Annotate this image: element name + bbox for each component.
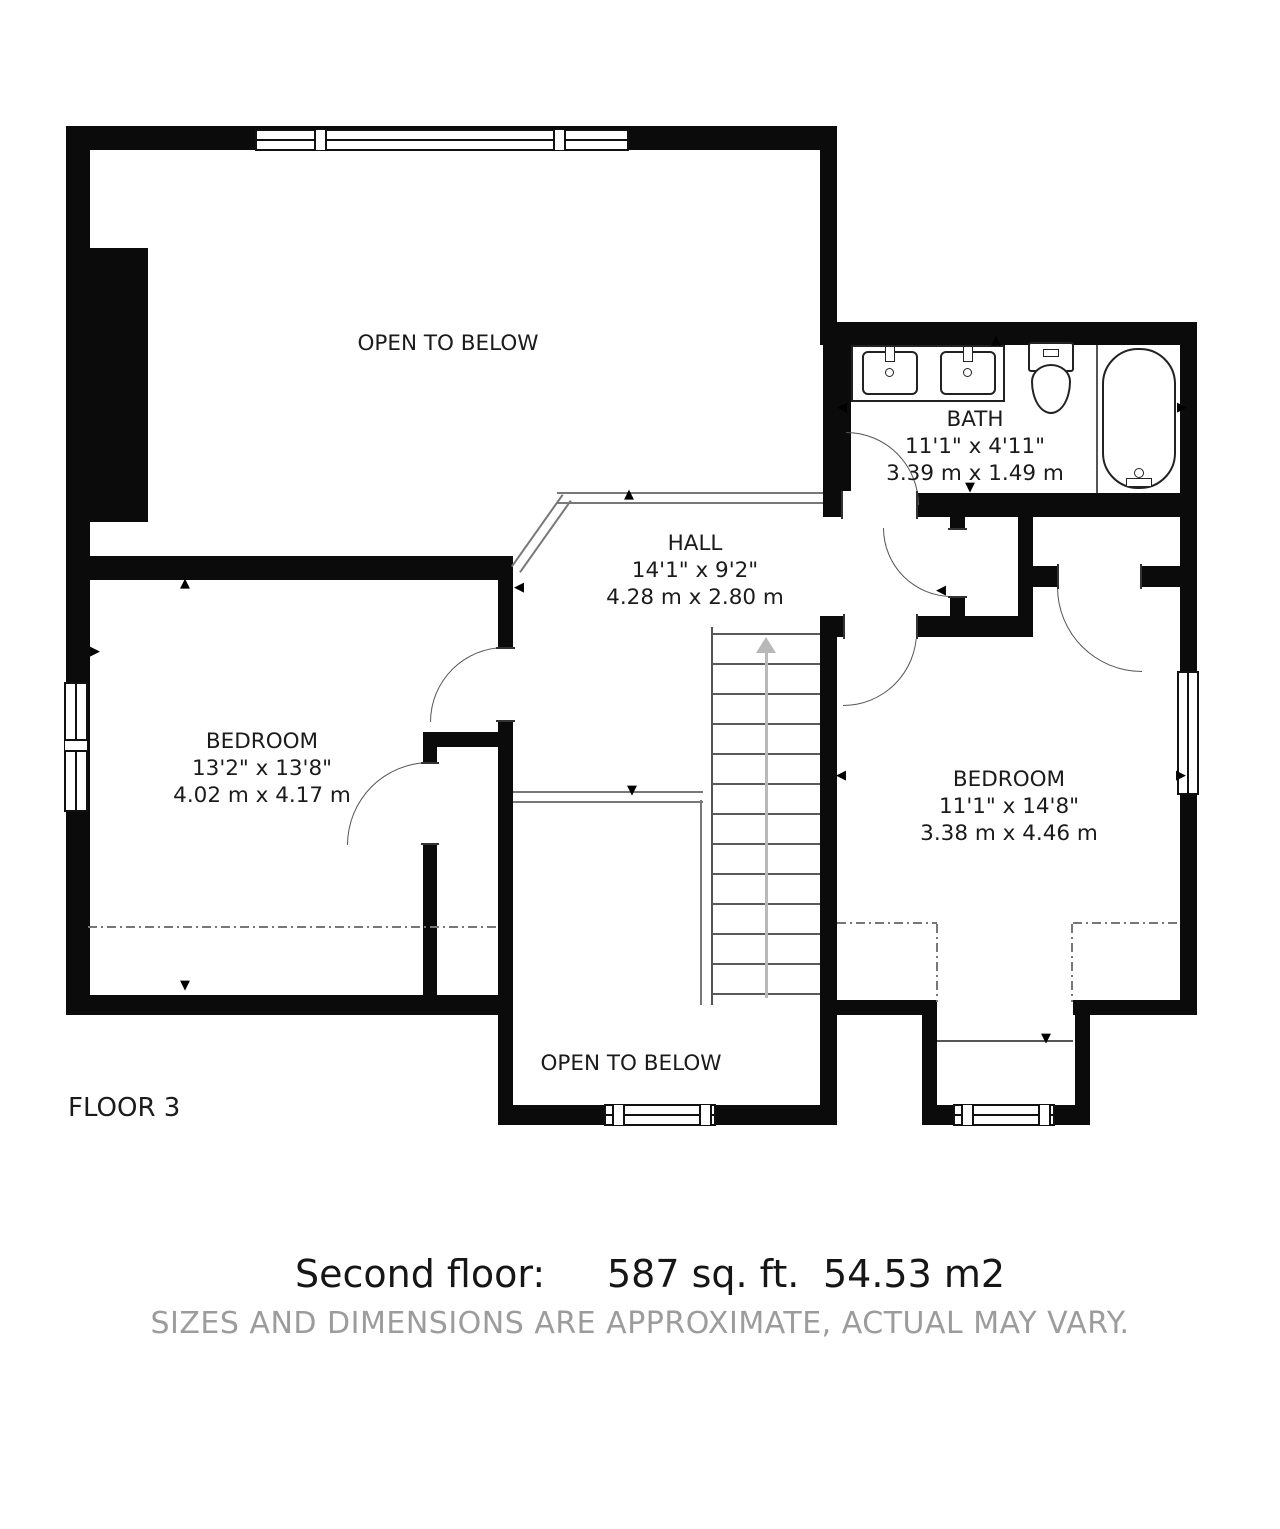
window-left — [64, 682, 88, 812]
dormer-break-line — [937, 1040, 1073, 1042]
wall-marker-icon: ▼ — [180, 979, 190, 992]
room-size-metric: 4.02 m x 4.17 m — [173, 782, 351, 809]
wall-marker-icon: ▼ — [1041, 1032, 1051, 1045]
footer-disclaimer: SIZES AND DIMENSIONS ARE APPROXIMATE, AC… — [150, 1306, 1129, 1341]
stair-direction-arrow-shaft — [765, 650, 768, 998]
window-mullion — [65, 739, 87, 752]
ceiling-break-bedroom-left — [88, 926, 498, 928]
window-mullion — [314, 130, 327, 150]
window-bottom-right — [953, 1104, 1055, 1126]
room-size-imperial: 13'2" x 13'8" — [173, 755, 351, 782]
room-size-imperial: 11'1" x 4'11" — [886, 433, 1064, 460]
room-name: BEDROOM — [920, 766, 1098, 793]
room-name: BATH — [886, 406, 1064, 433]
window-mullion — [612, 1105, 625, 1125]
wall-marker-icon: ▼ — [627, 784, 637, 797]
bedroom-left-door-arc — [430, 647, 505, 722]
stair-direction-arrow-icon — [756, 637, 776, 653]
stair-stringer-line — [711, 627, 713, 1005]
bedroom-left-closet-door-opening — [421, 762, 439, 845]
room-label-bedroom-left: BEDROOM 13'2" x 13'8" 4.02 m x 4.17 m — [173, 728, 351, 809]
window-glass-line — [1187, 673, 1189, 793]
room-name: HALL — [606, 530, 784, 557]
ceiling-break-bedroom-right-v1 — [936, 924, 938, 1002]
wall-dormer-east — [1075, 1015, 1090, 1125]
floor-number-label: FLOOR 3 — [68, 1093, 180, 1123]
wall-bedroom-left-top — [66, 556, 513, 580]
wall-hallcloset-west-a — [950, 510, 965, 528]
drain-icon — [885, 368, 894, 377]
hall-railing-diagonal — [511, 494, 572, 573]
room-label-bedroom-right: BEDROOM 11'1" x 14'8" 3.38 m x 4.46 m — [920, 766, 1098, 847]
room-size-metric: 4.28 m x 2.80 m — [606, 584, 784, 611]
drain-icon — [963, 368, 972, 377]
bedroom-left-door-opening — [496, 647, 515, 722]
wall-marker-icon: ◀ — [514, 581, 524, 594]
room-size-metric: 3.39 m x 1.49 m — [886, 460, 1064, 487]
room-label-bath: BATH 11'1" x 4'11" 3.39 m x 1.49 m — [886, 406, 1064, 487]
chimney-mass — [66, 248, 148, 522]
wall-closet-left-top — [423, 732, 513, 747]
wall-marker-icon: ◀ — [936, 584, 946, 597]
tub-faucet-icon — [1126, 478, 1152, 487]
wall-bedroom-left-south — [66, 995, 513, 1015]
wall-bedroom-left-east-a — [498, 580, 513, 647]
tub-partition-line — [1096, 345, 1098, 493]
window-glass-line — [257, 139, 627, 141]
open-edge-line — [700, 800, 702, 1005]
wall-stair-east — [820, 620, 837, 1125]
wall-outer-right — [1180, 322, 1197, 1015]
wall-marker-icon: ▶ — [1176, 769, 1186, 782]
room-size-imperial: 11'1" x 14'8" — [920, 793, 1098, 820]
hall-railing — [557, 492, 823, 504]
wall-bath-north — [835, 322, 1197, 345]
bedroom-right-closet-door-arc — [1057, 587, 1142, 672]
window-mullion — [1038, 1105, 1051, 1125]
footer-area-m2: 54.53 m2 — [823, 1252, 1005, 1296]
ceiling-break-bedroom-right-b — [1073, 922, 1180, 924]
bath-door-opening — [841, 491, 918, 519]
wall-closet-left-west-a — [423, 747, 437, 762]
bedroom-right-closet-door-opening — [1057, 564, 1142, 589]
window-mullion — [553, 130, 566, 150]
wall-marker-icon: ▶ — [1177, 401, 1187, 414]
window-mullion — [699, 1105, 712, 1125]
room-name: OPEN TO BELOW — [357, 330, 538, 357]
bedroom-left-closet-door-arc — [347, 762, 430, 845]
landing-railing — [513, 791, 703, 803]
wall-top-right — [820, 126, 837, 345]
wall-marker-icon: ▲ — [624, 488, 634, 501]
faucet-icon — [885, 346, 895, 362]
footer-area-sqft: 587 sq. ft. — [607, 1252, 799, 1296]
wall-bedroom-right-south-right — [1073, 1000, 1197, 1015]
window-mullion — [961, 1105, 974, 1125]
wall-marker-icon: ◀ — [837, 401, 847, 414]
room-size-metric: 3.38 m x 4.46 m — [920, 820, 1098, 847]
bedroom-right-door-opening — [843, 614, 918, 639]
tub-faucet-knob-icon — [1134, 468, 1144, 478]
window-bottom-center — [604, 1104, 716, 1126]
wall-marker-icon: ▲ — [180, 577, 190, 590]
ceiling-break-bedroom-right-v2 — [1071, 924, 1073, 1002]
room-name: BEDROOM — [173, 728, 351, 755]
room-name: OPEN TO BELOW — [540, 1050, 721, 1077]
footer-floor-name: Second floor: — [295, 1252, 545, 1296]
stair-tread — [713, 633, 820, 635]
wall-marker-icon: ▶ — [90, 645, 100, 658]
faucet-icon — [963, 346, 973, 362]
wall-marker-icon: ▲ — [991, 334, 1001, 347]
toilet-button-icon — [1043, 349, 1059, 357]
bedroom-right-door-arc — [843, 632, 917, 706]
floor-plan-page: ▲ ▼ ▶ ◀ ▲ ▼ ▼ ◀ ▶ ◀ ▶ ◀ ▼ ▲ OPEN TO BELO… — [0, 0, 1280, 1529]
room-label-open-to-below-bottom: OPEN TO BELOW — [540, 1050, 721, 1077]
room-label-open-to-below-top: OPEN TO BELOW — [357, 330, 538, 357]
wall-bedroom-right-south-left — [820, 1000, 937, 1015]
ceiling-break-bedroom-right-a — [837, 922, 937, 924]
room-size-imperial: 14'1" x 9'2" — [606, 557, 784, 584]
room-label-hall: HALL 14'1" x 9'2" 4.28 m x 2.80 m — [606, 530, 784, 611]
window-top — [255, 129, 629, 151]
hall-closet-door-opening — [948, 528, 967, 598]
wall-bedroom-left-east-c — [498, 747, 513, 1015]
wall-closet-left-west-b — [423, 845, 437, 995]
wall-marker-icon: ◀ — [836, 769, 846, 782]
